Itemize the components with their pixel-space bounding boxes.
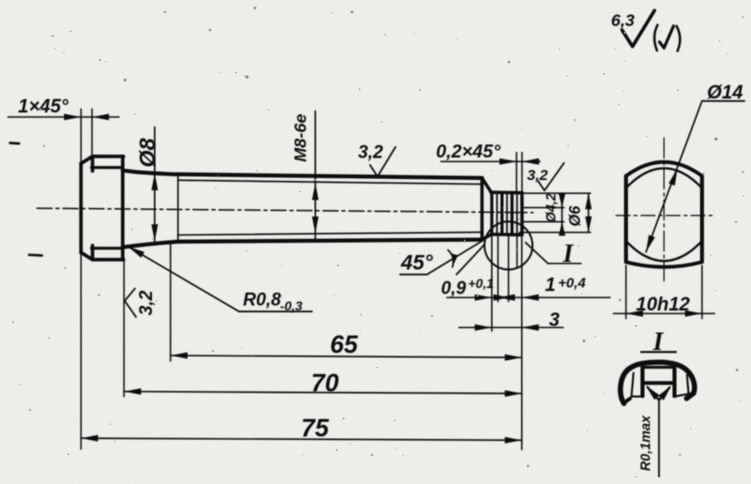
svg-text:75: 75 — [301, 415, 330, 443]
svg-text:3,2: 3,2 — [527, 167, 549, 184]
svg-text:3: 3 — [549, 310, 560, 331]
svg-text:1: 1 — [545, 275, 556, 296]
svg-text:3,2: 3,2 — [136, 290, 156, 315]
svg-text:+0,1: +0,1 — [468, 276, 494, 291]
svg-text:0,2×45°: 0,2×45° — [436, 141, 501, 162]
svg-text:I: I — [562, 239, 574, 268]
svg-text:0,9: 0,9 — [441, 278, 466, 298]
svg-text:Ø8: Ø8 — [135, 137, 160, 167]
svg-text:R0,8: R0,8 — [243, 290, 281, 310]
svg-text:Ø4,2: Ø4,2 — [544, 193, 559, 223]
svg-text:R0,1max: R0,1max — [638, 415, 653, 471]
svg-text:65: 65 — [330, 331, 359, 359]
svg-text:Ø14: Ø14 — [707, 83, 743, 104]
svg-text:45°: 45° — [400, 252, 433, 275]
svg-text:70: 70 — [311, 370, 339, 398]
svg-text:-0,3: -0,3 — [280, 299, 303, 314]
svg-text:M8-6e: M8-6e — [291, 114, 310, 162]
svg-text:6,3: 6,3 — [611, 11, 635, 30]
svg-text:1×45°: 1×45° — [18, 97, 69, 118]
svg-text:Ø6: Ø6 — [567, 205, 584, 226]
svg-text:10h12: 10h12 — [636, 295, 690, 316]
svg-text:+0,4: +0,4 — [558, 275, 586, 291]
svg-text:I: I — [652, 327, 664, 356]
svg-text:3,2: 3,2 — [358, 142, 383, 162]
